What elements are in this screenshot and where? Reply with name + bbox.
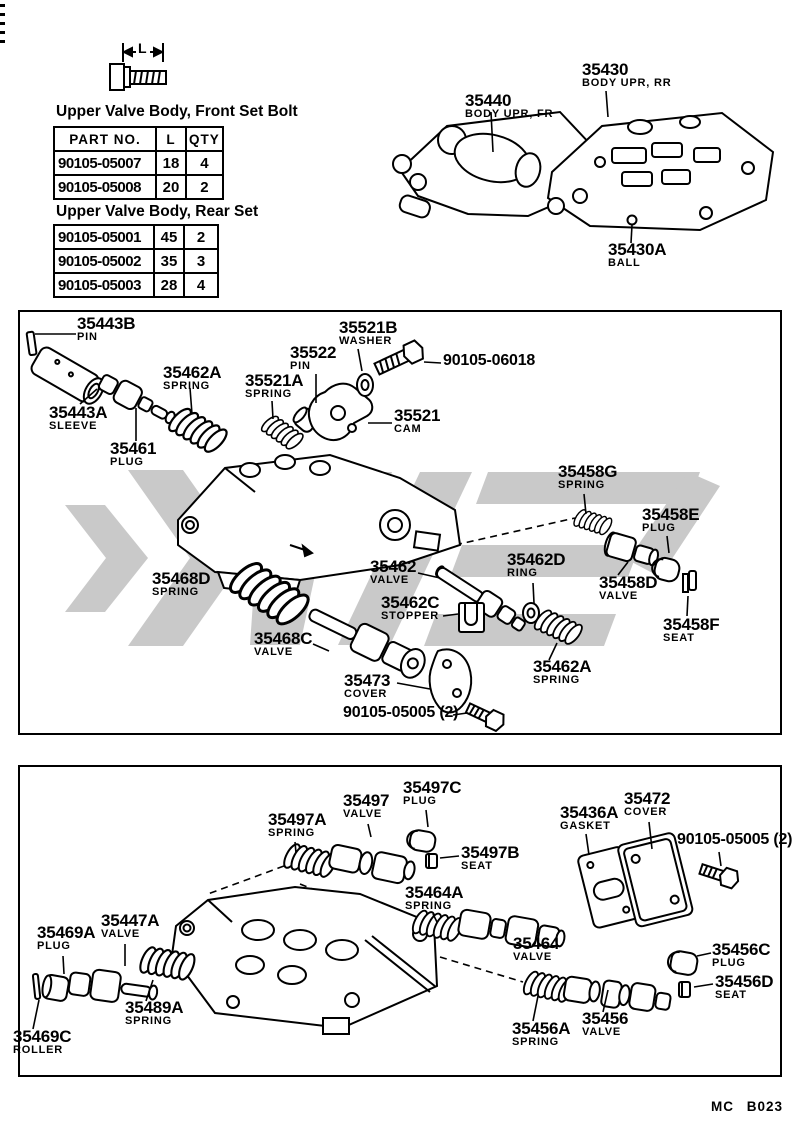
rear-set-table: 90105-05001 45 2 90105-05002 35 3 90105-… [53, 224, 219, 298]
part-label-35456c: 35456C PLUG [712, 941, 770, 970]
part-number: 35430A [608, 241, 666, 258]
part-number: 35436A [560, 804, 618, 821]
part-label-35458d: 35458D VALVE [599, 574, 657, 603]
part-number: 35521 [394, 407, 440, 424]
part-name: GASKET [560, 821, 618, 832]
part-number: 35456C [712, 941, 770, 958]
part-label-35497c: 35497C PLUG [403, 779, 461, 808]
part-label-35472: 35472 COVER [624, 790, 670, 819]
table-cell: 28 [154, 273, 184, 297]
part-label-35461: 35461 PLUG [110, 440, 156, 469]
part-number: 35462D [507, 551, 565, 568]
part-label-35462c: 35462C STOPPER [381, 594, 439, 623]
part-label-35462d: 35462D RING [507, 551, 565, 580]
part-label-35521b: 35521B WASHER [339, 319, 397, 348]
part-name: SPRING [125, 1016, 183, 1027]
part-label-35456a: 35456A SPRING [512, 1020, 570, 1049]
part-name: SEAT [461, 861, 519, 872]
part-number: 35469C [13, 1028, 71, 1045]
part-label-35497b: 35497B SEAT [461, 844, 519, 873]
front-set-bolt-title: Upper Valve Body, Front Set Bolt [56, 103, 298, 121]
part-number: 35447A [101, 912, 159, 929]
part-name: COVER [624, 807, 670, 818]
part-name: PLUG [712, 958, 770, 969]
part-name: SPRING [163, 381, 221, 392]
part-name: SLEEVE [49, 421, 107, 432]
part-name: SEAT [715, 990, 773, 1001]
part-label-35468c: 35468C VALVE [254, 630, 312, 659]
part-number: 35464 [513, 935, 559, 952]
part-name: PLUG [642, 523, 699, 534]
part-name: PIN [290, 361, 336, 372]
part-number: 35458E [642, 506, 699, 523]
part-number: 35462A [163, 364, 221, 381]
part-name: STOPPER [381, 611, 439, 622]
part-number: 35521A [245, 372, 303, 389]
part-number: 35430 [582, 61, 671, 78]
part-number: 35461 [110, 440, 156, 457]
table-cell: 90105-05002 [54, 249, 154, 273]
part-name: SPRING [268, 828, 326, 839]
part-label-35489a: 35489A SPRING [125, 999, 183, 1028]
part-label-35430: 35430 BODY UPR, RR [582, 61, 671, 90]
part-name: WASHER [339, 336, 397, 347]
part-label-35458e: 35458E PLUG [642, 506, 699, 535]
part-name: COVER [344, 689, 390, 700]
part-number: 35458F [663, 616, 719, 633]
part-number: 35468C [254, 630, 312, 647]
rear-set-title: Upper Valve Body, Rear Set [56, 203, 258, 221]
part-number: 35497A [268, 811, 326, 828]
bolt-dimension-label: L [138, 40, 147, 56]
part-number: 35497C [403, 779, 461, 796]
part-label-35469c: 35469C ROLLER [13, 1028, 71, 1057]
table-cell: 3 [184, 249, 218, 273]
part-number: 35521B [339, 319, 397, 336]
col-header: QTY [186, 127, 223, 151]
part-number: 90105-05005 (2) [343, 705, 458, 721]
part-label-35430a: 35430A BALL [608, 241, 666, 270]
part-number: 35458D [599, 574, 657, 591]
table-cell: 90105-05001 [54, 225, 154, 249]
part-number: 35458G [558, 463, 617, 480]
part-name: SPRING [152, 587, 210, 598]
part-label-35462a-2: 35462A SPRING [533, 658, 591, 687]
part-label-35458g: 35458G SPRING [558, 463, 617, 492]
part-name: PLUG [403, 796, 461, 807]
table-cell: 90105-05007 [54, 151, 156, 175]
part-label-35436a: 35436A GASKET [560, 804, 618, 833]
part-label-35468d: 35468D SPRING [152, 570, 210, 599]
part-number: 35497B [461, 844, 519, 861]
part-number: 35522 [290, 344, 336, 361]
ball-drawing [628, 216, 637, 244]
part-label-35464a: 35464A SPRING [405, 884, 463, 913]
part-label-35522: 35522 PIN [290, 344, 336, 373]
part-label-35462a-1: 35462A SPRING [163, 364, 221, 393]
part-label-35458f: 35458F SEAT [663, 616, 719, 645]
table-cell: 90105-05008 [54, 175, 156, 199]
table-cell: 45 [154, 225, 184, 249]
part-number: 35472 [624, 790, 670, 807]
part-number: 35456A [512, 1020, 570, 1037]
part-name: BODY UPR, RR [582, 78, 671, 89]
part-label-90105-05005-upper: 90105-05005 (2) [343, 705, 458, 721]
part-number: 35440 [465, 92, 553, 109]
part-name: VALVE [370, 575, 416, 586]
part-label-35473: 35473 COVER [344, 672, 390, 701]
part-number: 35497 [343, 792, 389, 809]
table-cell: 4 [184, 273, 218, 297]
table-cell: 2 [186, 175, 223, 199]
part-number: 90105-05005 (2) [677, 832, 792, 848]
part-name: PLUG [110, 457, 156, 468]
part-label-35462: 35462 VALVE [370, 558, 416, 587]
part-number: 35462C [381, 594, 439, 611]
table-cell: 4 [186, 151, 223, 175]
part-label-90105-05005-lower: 90105-05005 (2) [677, 832, 792, 848]
page-code: MC B023 [711, 1099, 783, 1114]
part-number: 35443B [77, 315, 135, 332]
col-header: L [156, 127, 186, 151]
part-label-35440: 35440 BODY UPR, FR [465, 92, 553, 121]
part-name: VALVE [513, 952, 559, 963]
part-name: RING [507, 568, 565, 579]
part-name: PLUG [37, 941, 95, 952]
part-label-35443b: 35443B PIN [77, 315, 135, 344]
part-name: BALL [608, 258, 666, 269]
part-number: 35443A [49, 404, 107, 421]
part-name: SEAT [663, 633, 719, 644]
part-label-35456: 35456 VALVE [582, 1010, 628, 1039]
part-number: 35462A [533, 658, 591, 675]
part-label-35497a: 35497A SPRING [268, 811, 326, 840]
part-number: 35456D [715, 973, 773, 990]
table-cell: 18 [156, 151, 186, 175]
part-number: 35469A [37, 924, 95, 941]
part-number: 90105-06018 [443, 353, 535, 369]
part-label-35464: 35464 VALVE [513, 935, 559, 964]
part-label-35447a: 35447A VALVE [101, 912, 159, 941]
parts-catalog-page: L Upper Valve Body, Front Set Bolt PART … [0, 0, 800, 1126]
part-number: 35473 [344, 672, 390, 689]
part-name: SPRING [405, 901, 463, 912]
part-name: SPRING [558, 480, 617, 491]
part-name: VALVE [582, 1027, 628, 1038]
part-name: PIN [77, 332, 135, 343]
part-name: SPRING [245, 389, 303, 400]
edge-marks [0, 4, 5, 43]
part-name: ROLLER [13, 1045, 71, 1056]
part-name: VALVE [599, 591, 657, 602]
front-set-bolt-table: PART NO. L QTY 90105-05007 18 4 90105-05… [53, 126, 224, 200]
col-header: PART NO. [54, 127, 156, 151]
part-label-35521: 35521 CAM [394, 407, 440, 436]
table-cell: 35 [154, 249, 184, 273]
table-cell: 20 [156, 175, 186, 199]
part-label-35497: 35497 VALVE [343, 792, 389, 821]
part-number: 35489A [125, 999, 183, 1016]
part-label-35443a: 35443A SLEEVE [49, 404, 107, 433]
part-name: SPRING [533, 675, 591, 686]
part-number: 35464A [405, 884, 463, 901]
valve-body-rr-drawing [548, 113, 773, 230]
part-number: 35456 [582, 1010, 628, 1027]
part-name: VALVE [101, 929, 159, 940]
part-number: 35462 [370, 558, 416, 575]
part-label-35521a: 35521A SPRING [245, 372, 303, 401]
part-name: VALVE [343, 809, 389, 820]
part-name: SPRING [512, 1037, 570, 1048]
part-label-90105-06018: 90105-06018 [443, 353, 535, 369]
part-number: 35468D [152, 570, 210, 587]
part-name: BODY UPR, FR [465, 109, 553, 120]
table-cell: 2 [184, 225, 218, 249]
part-label-35456d: 35456D SEAT [715, 973, 773, 1002]
part-label-35469a: 35469A PLUG [37, 924, 95, 953]
part-name: VALVE [254, 647, 312, 658]
table-cell: 90105-05003 [54, 273, 154, 297]
part-name: CAM [394, 424, 440, 435]
